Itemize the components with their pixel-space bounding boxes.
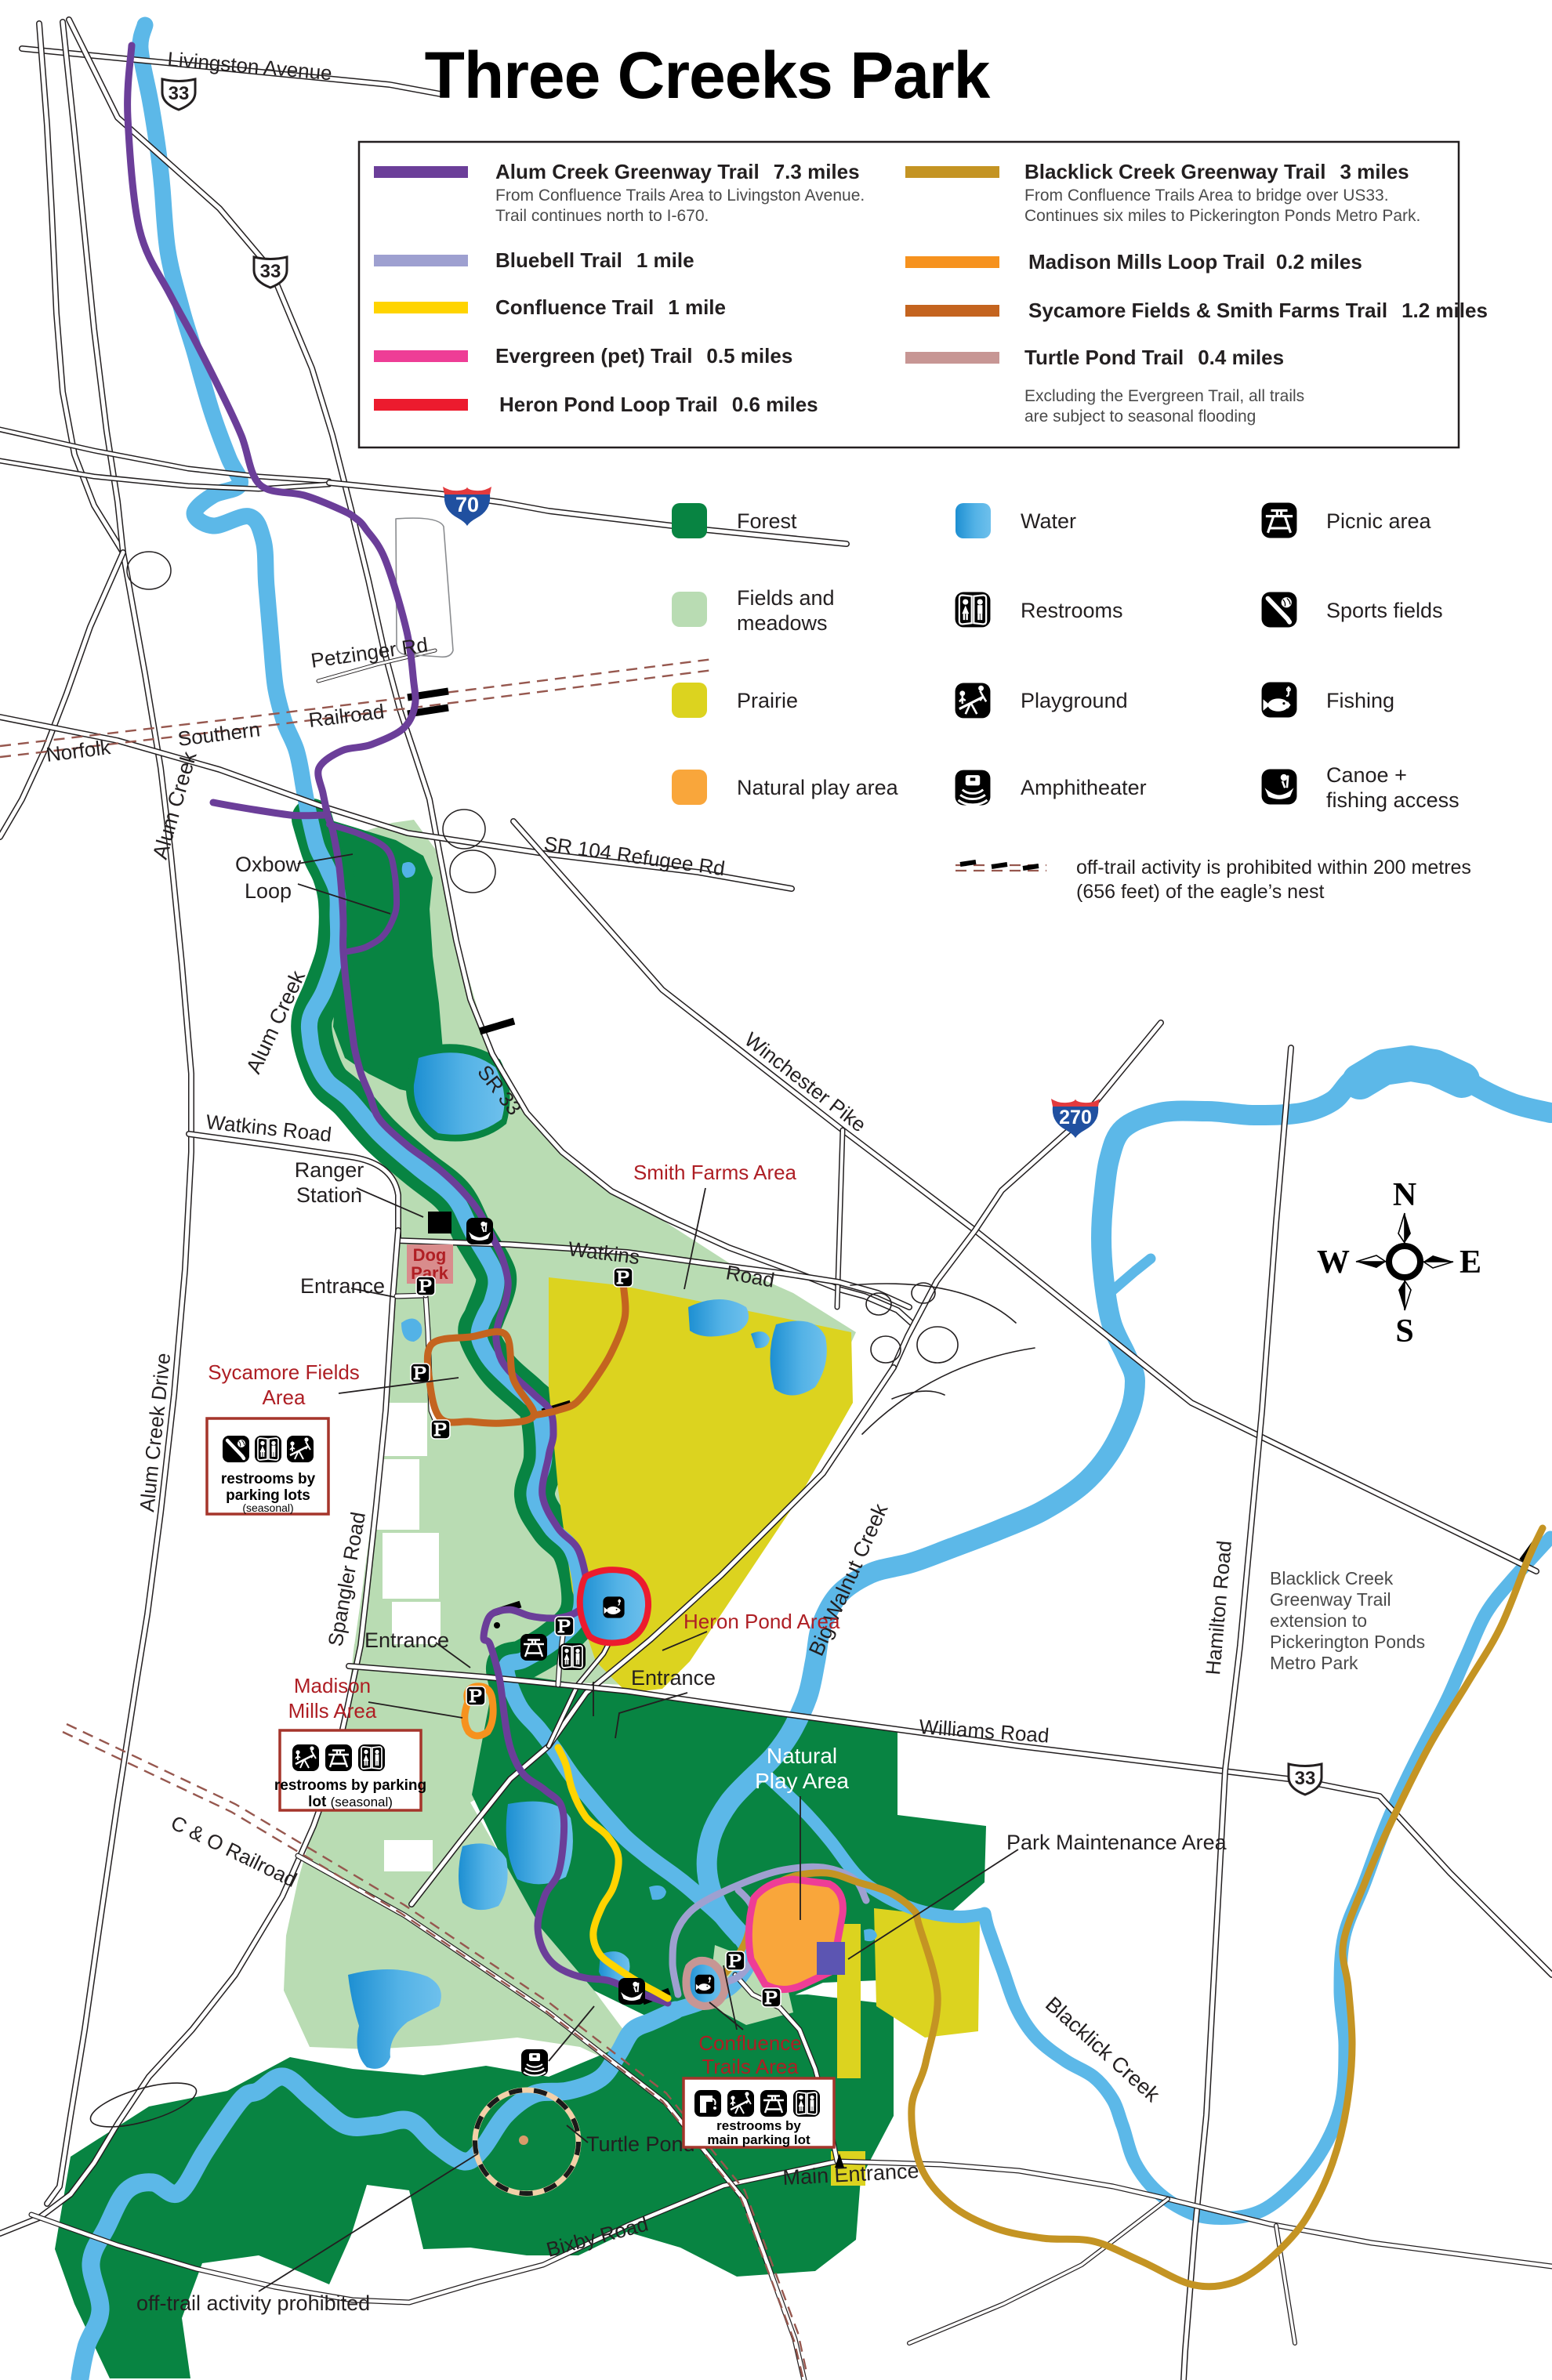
svg-text:Trail continues north to I-670: Trail continues north to I-670.	[495, 207, 709, 225]
svg-text:Alum Creek Greenway Trail7.3 m: Alum Creek Greenway Trail7.3 miles	[495, 160, 860, 183]
svg-text:Loop: Loop	[245, 879, 292, 903]
svg-text:From Confluence Trails Area to: From Confluence Trails Area to bridge ov…	[1024, 187, 1389, 205]
svg-text:meadows: meadows	[737, 611, 828, 635]
svg-text:Evergreen (pet) Trail0.5 miles: Evergreen (pet) Trail0.5 miles	[495, 344, 792, 368]
svg-text:Blacklick Creek: Blacklick Creek	[1270, 1568, 1394, 1588]
svg-text:E: E	[1460, 1244, 1481, 1281]
svg-text:Ranger: Ranger	[295, 1158, 364, 1182]
svg-text:Restrooms: Restrooms	[1021, 599, 1123, 622]
svg-text:Area: Area	[263, 1386, 306, 1409]
svg-text:are subject to seasonal floodi: are subject to seasonal flooding	[1024, 408, 1256, 426]
svg-text:restrooms by: restrooms by	[716, 2118, 801, 2133]
svg-text:Park Maintenance Area: Park Maintenance Area	[1006, 1831, 1227, 1854]
svg-text:Metro Park: Metro Park	[1270, 1653, 1358, 1673]
svg-text:70: 70	[455, 493, 479, 516]
svg-text:Forest: Forest	[737, 509, 797, 533]
svg-text:Entrance: Entrance	[364, 1628, 449, 1652]
svg-text:lot (seasonal): lot (seasonal)	[308, 1794, 393, 1810]
svg-text:Station: Station	[296, 1183, 362, 1207]
svg-text:Trails Area: Trails Area	[702, 2055, 799, 2078]
svg-text:extension to: extension to	[1270, 1610, 1367, 1631]
svg-text:Heron Pond Area: Heron Pond Area	[684, 1610, 840, 1633]
svg-text:Smith Farms Area: Smith Farms Area	[633, 1161, 797, 1184]
svg-text:(seasonal): (seasonal)	[242, 1502, 293, 1514]
svg-text:Confluence Trail1 mile: Confluence Trail1 mile	[495, 295, 726, 319]
svg-text:Excluding the Evergreen Trail,: Excluding the Evergreen Trail, all trail…	[1024, 387, 1304, 405]
svg-text:off-trail activity prohibited: off-trail activity prohibited	[136, 2291, 370, 2315]
svg-text:270: 270	[1059, 1107, 1092, 1128]
svg-text:Water: Water	[1021, 509, 1076, 533]
svg-text:Sports fields: Sports fields	[1326, 599, 1443, 622]
svg-text:Prairie: Prairie	[737, 689, 798, 712]
svg-text:Continues six miles to Pickeri: Continues six miles to Pickerington Pond…	[1024, 207, 1420, 225]
svg-text:Amphitheater: Amphitheater	[1021, 776, 1147, 799]
svg-text:Oxbow: Oxbow	[235, 853, 302, 876]
svg-text:off-trail activity is prohibit: off-trail activity is prohibited within …	[1076, 857, 1471, 878]
svg-text:fishing access: fishing access	[1326, 788, 1460, 812]
svg-text:N: N	[1393, 1177, 1416, 1213]
svg-text:Blacklick Creek Greenway Trail: Blacklick Creek Greenway Trail3 miles	[1024, 160, 1409, 183]
svg-text:Turtle Pond Trail0.4 miles: Turtle Pond Trail0.4 miles	[1024, 346, 1284, 369]
svg-text:Natural: Natural	[767, 1744, 837, 1768]
svg-text:Entrance: Entrance	[300, 1274, 385, 1298]
svg-text:(656 feet) of the eagle’s nest: (656 feet) of the eagle’s nest	[1076, 881, 1324, 903]
svg-text:main parking lot: main parking lot	[707, 2132, 810, 2147]
svg-text:Sycamore Fields & Smith Farms: Sycamore Fields & Smith Farms Trail1.2 m…	[1028, 299, 1488, 322]
svg-text:Natural play area: Natural play area	[737, 776, 899, 799]
svg-text:Fields and: Fields and	[737, 586, 835, 610]
svg-text:Madison Mills Loop Trail0.2 mi: Madison Mills Loop Trail0.2 miles	[1028, 250, 1362, 274]
svg-text:restrooms by parking: restrooms by parking	[274, 1777, 426, 1794]
svg-text:Pickerington Ponds: Pickerington Ponds	[1270, 1632, 1425, 1652]
svg-text:Play Area: Play Area	[755, 1769, 849, 1793]
svg-text:Greenway Trail: Greenway Trail	[1270, 1589, 1391, 1610]
svg-text:Playground: Playground	[1021, 689, 1128, 712]
svg-text:Mills Area: Mills Area	[288, 1699, 377, 1723]
svg-text:S: S	[1395, 1313, 1413, 1349]
svg-text:Sycamore Fields: Sycamore Fields	[208, 1360, 360, 1384]
svg-text:Madison: Madison	[294, 1674, 371, 1697]
svg-text:Bluebell Trail1 mile: Bluebell Trail1 mile	[495, 248, 694, 272]
svg-text:From Confluence Trails Area to: From Confluence Trails Area to Livingsto…	[495, 187, 865, 205]
svg-text:Entrance: Entrance	[631, 1666, 716, 1690]
svg-text:Picnic area: Picnic area	[1326, 509, 1432, 533]
svg-text:Canoe +: Canoe +	[1326, 763, 1407, 787]
svg-text:Heron Pond Loop Trail0.6 miles: Heron Pond Loop Trail0.6 miles	[499, 393, 818, 416]
svg-text:Confluence: Confluence	[698, 2031, 802, 2055]
svg-text:Three Creeks Park: Three Creeks Park	[425, 38, 991, 112]
svg-text:restrooms by: restrooms by	[221, 1471, 316, 1487]
svg-text:Turtle Pond: Turtle Pond	[586, 2132, 695, 2156]
svg-text:Fishing: Fishing	[1326, 689, 1394, 712]
svg-text:Dog: Dog	[413, 1245, 447, 1265]
svg-text:W: W	[1317, 1244, 1350, 1281]
